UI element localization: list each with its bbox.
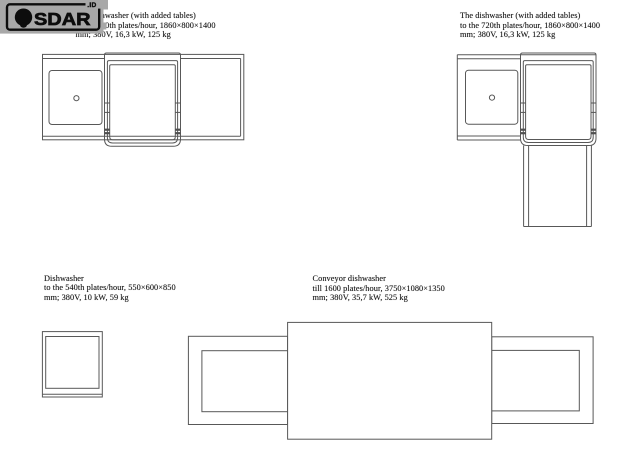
svg-text:.ID: .ID (87, 2, 96, 9)
svg-text:SDAR: SDAR (34, 9, 91, 29)
